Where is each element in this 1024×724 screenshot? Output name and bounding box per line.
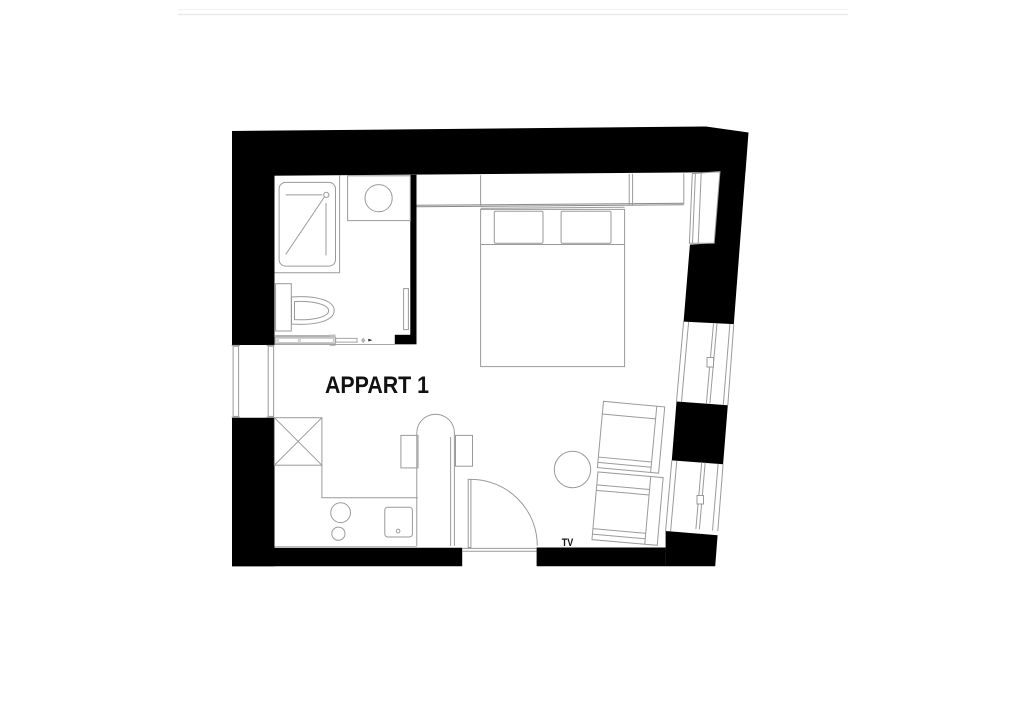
svg-text:APPART 1: APPART 1 (325, 372, 429, 399)
svg-text:TV: TV (562, 537, 574, 549)
